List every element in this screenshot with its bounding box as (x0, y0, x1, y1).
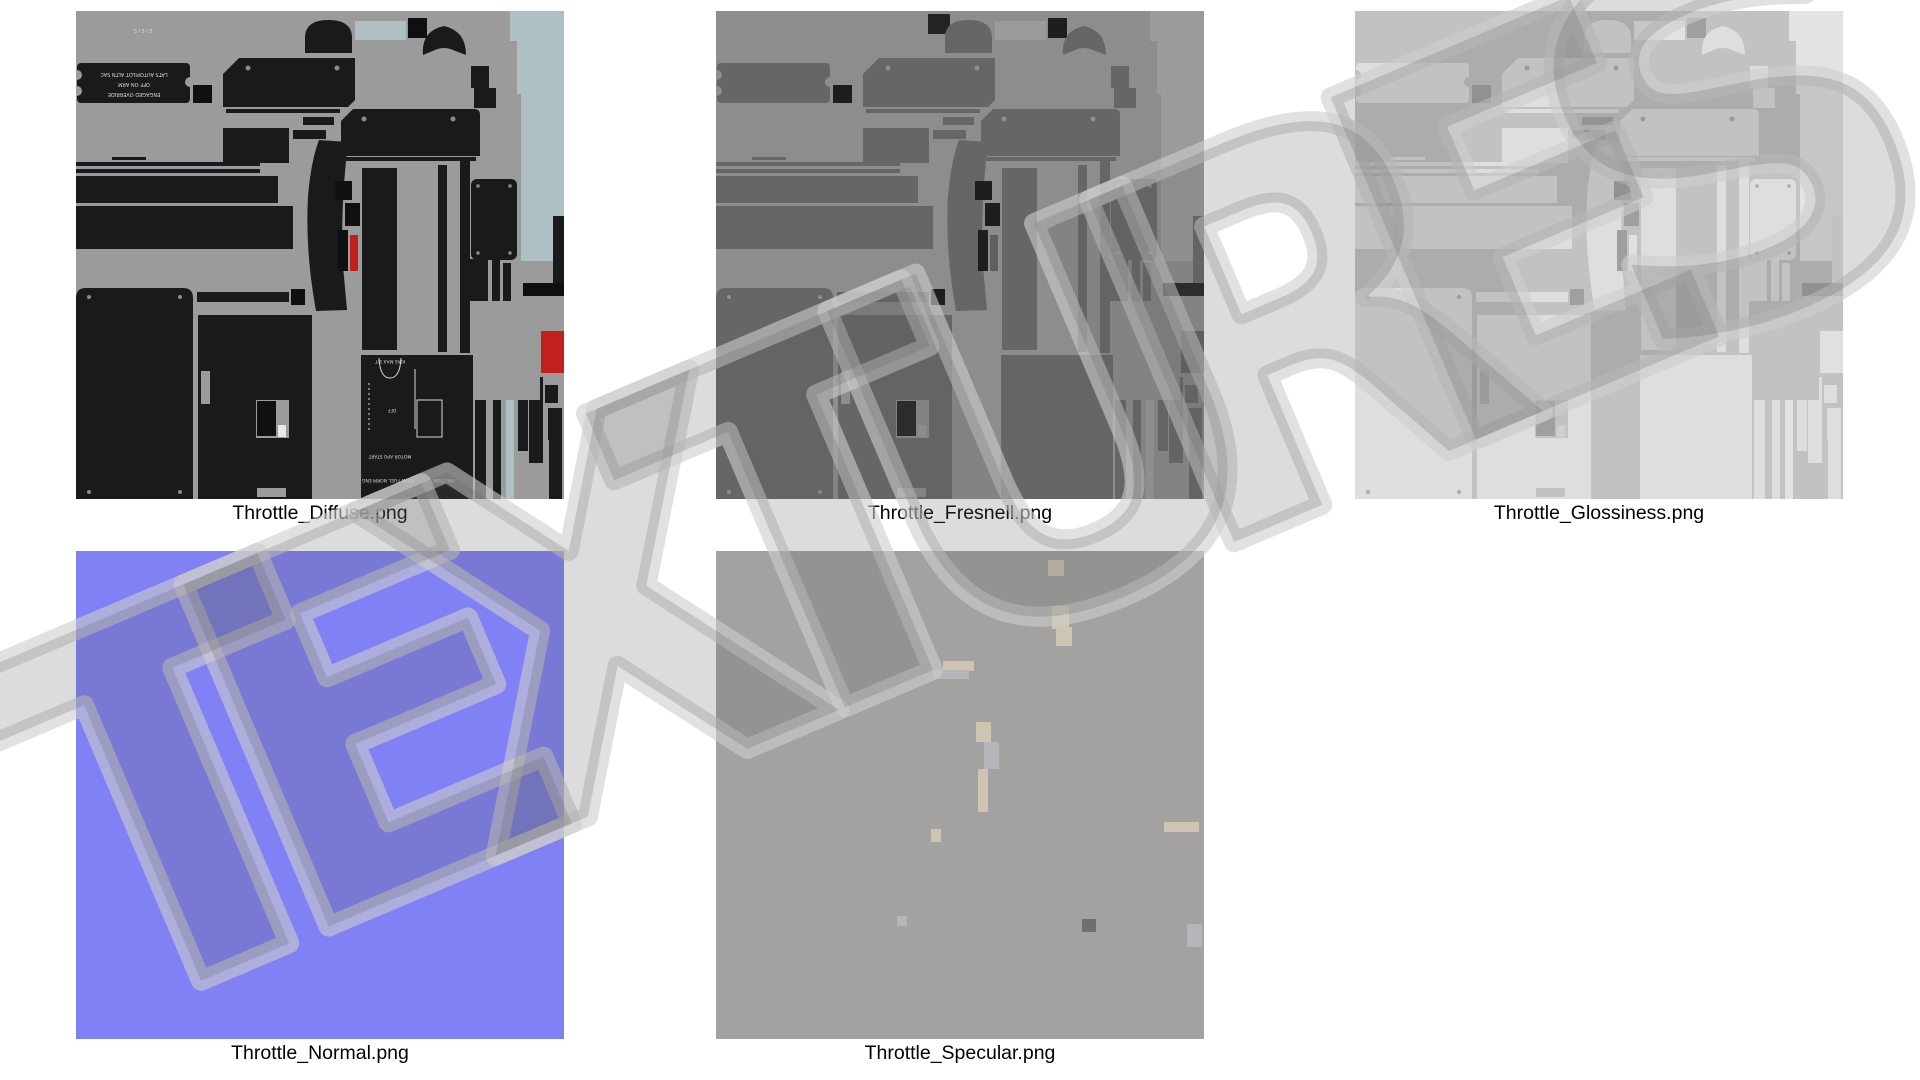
texture-preview-specular (716, 551, 1204, 1039)
texture-preview-diffuse (76, 11, 564, 499)
caption-normal: Throttle_Normal.png (76, 1041, 564, 1065)
normal-background (76, 551, 564, 1039)
caption-glossiness: Throttle_Glossiness.png (1355, 501, 1843, 525)
specular-background (716, 551, 1204, 1039)
caption-specular: Throttle_Specular.png (716, 1041, 1204, 1065)
caption-diffuse: Throttle_Diffuse.png (76, 501, 564, 525)
texture-preview-normal (76, 551, 564, 1039)
caption-fresnell: Throttle_Fresnell.png (716, 501, 1204, 525)
texture-preview-fresnell (716, 11, 1204, 499)
texture-sheet: ENGAGED OVERRIDE OFF ON ARM LATS AUTOPIL… (0, 0, 1920, 1080)
texture-preview-glossiness (1355, 11, 1843, 499)
